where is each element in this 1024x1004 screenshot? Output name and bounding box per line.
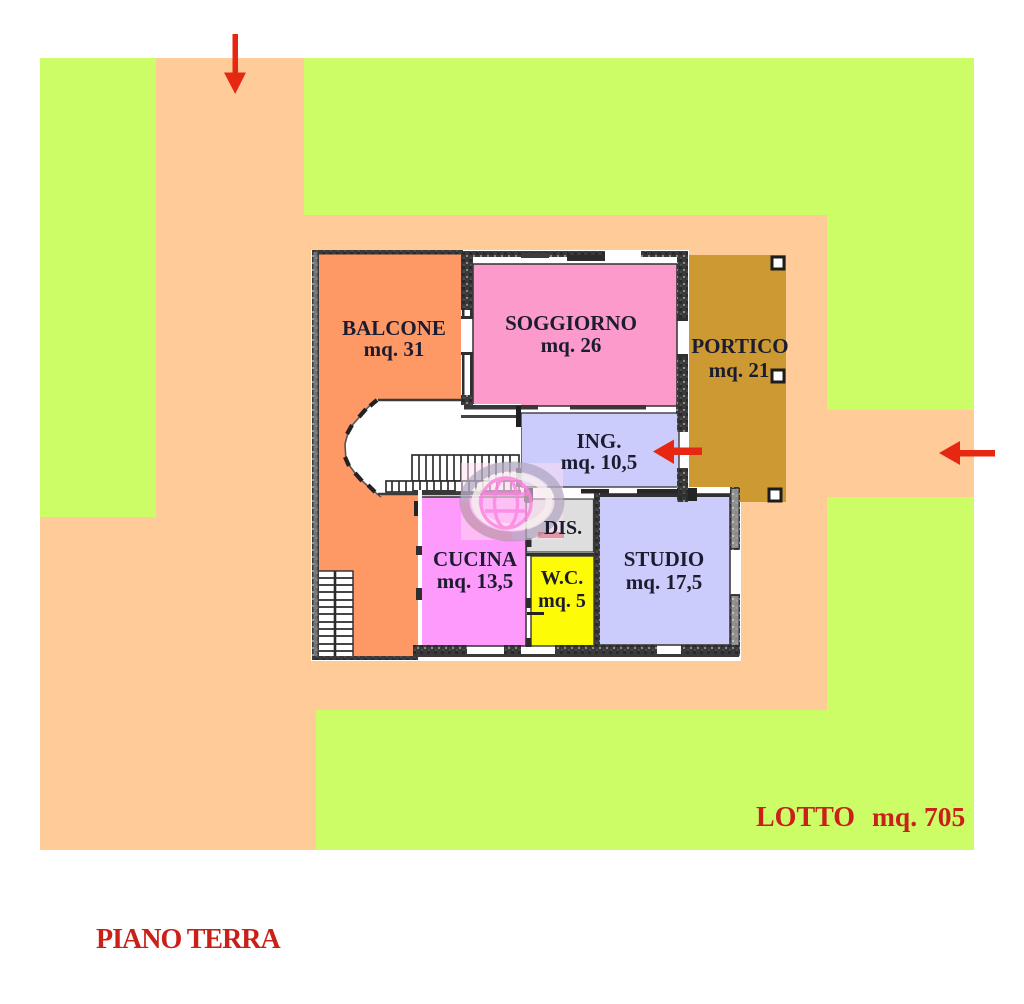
svg-text:mq. 26: mq. 26 <box>541 333 602 357</box>
svg-text:LOTTO: LOTTO <box>756 802 855 833</box>
svg-text:mq. 5: mq. 5 <box>538 590 586 612</box>
svg-text:PIANO TERRA: PIANO TERRA <box>96 924 282 955</box>
svg-text:mq. 10,5: mq. 10,5 <box>561 450 637 474</box>
svg-text:mq. 21: mq. 21 <box>709 358 770 382</box>
svg-text:mq. 13,5: mq. 13,5 <box>437 569 513 593</box>
svg-text:STUDIO: STUDIO <box>624 547 705 571</box>
svg-text:CUCINA: CUCINA <box>433 547 518 571</box>
svg-text:mq. 705: mq. 705 <box>872 801 965 832</box>
svg-text:PORTICO: PORTICO <box>691 334 788 358</box>
svg-text:mq. 31: mq. 31 <box>364 337 425 361</box>
svg-text:DIS.: DIS. <box>544 517 582 539</box>
svg-text:W.C.: W.C. <box>541 567 584 589</box>
svg-text:SOGGIORNO: SOGGIORNO <box>505 311 637 335</box>
svg-text:mq. 17,5: mq. 17,5 <box>626 570 702 594</box>
